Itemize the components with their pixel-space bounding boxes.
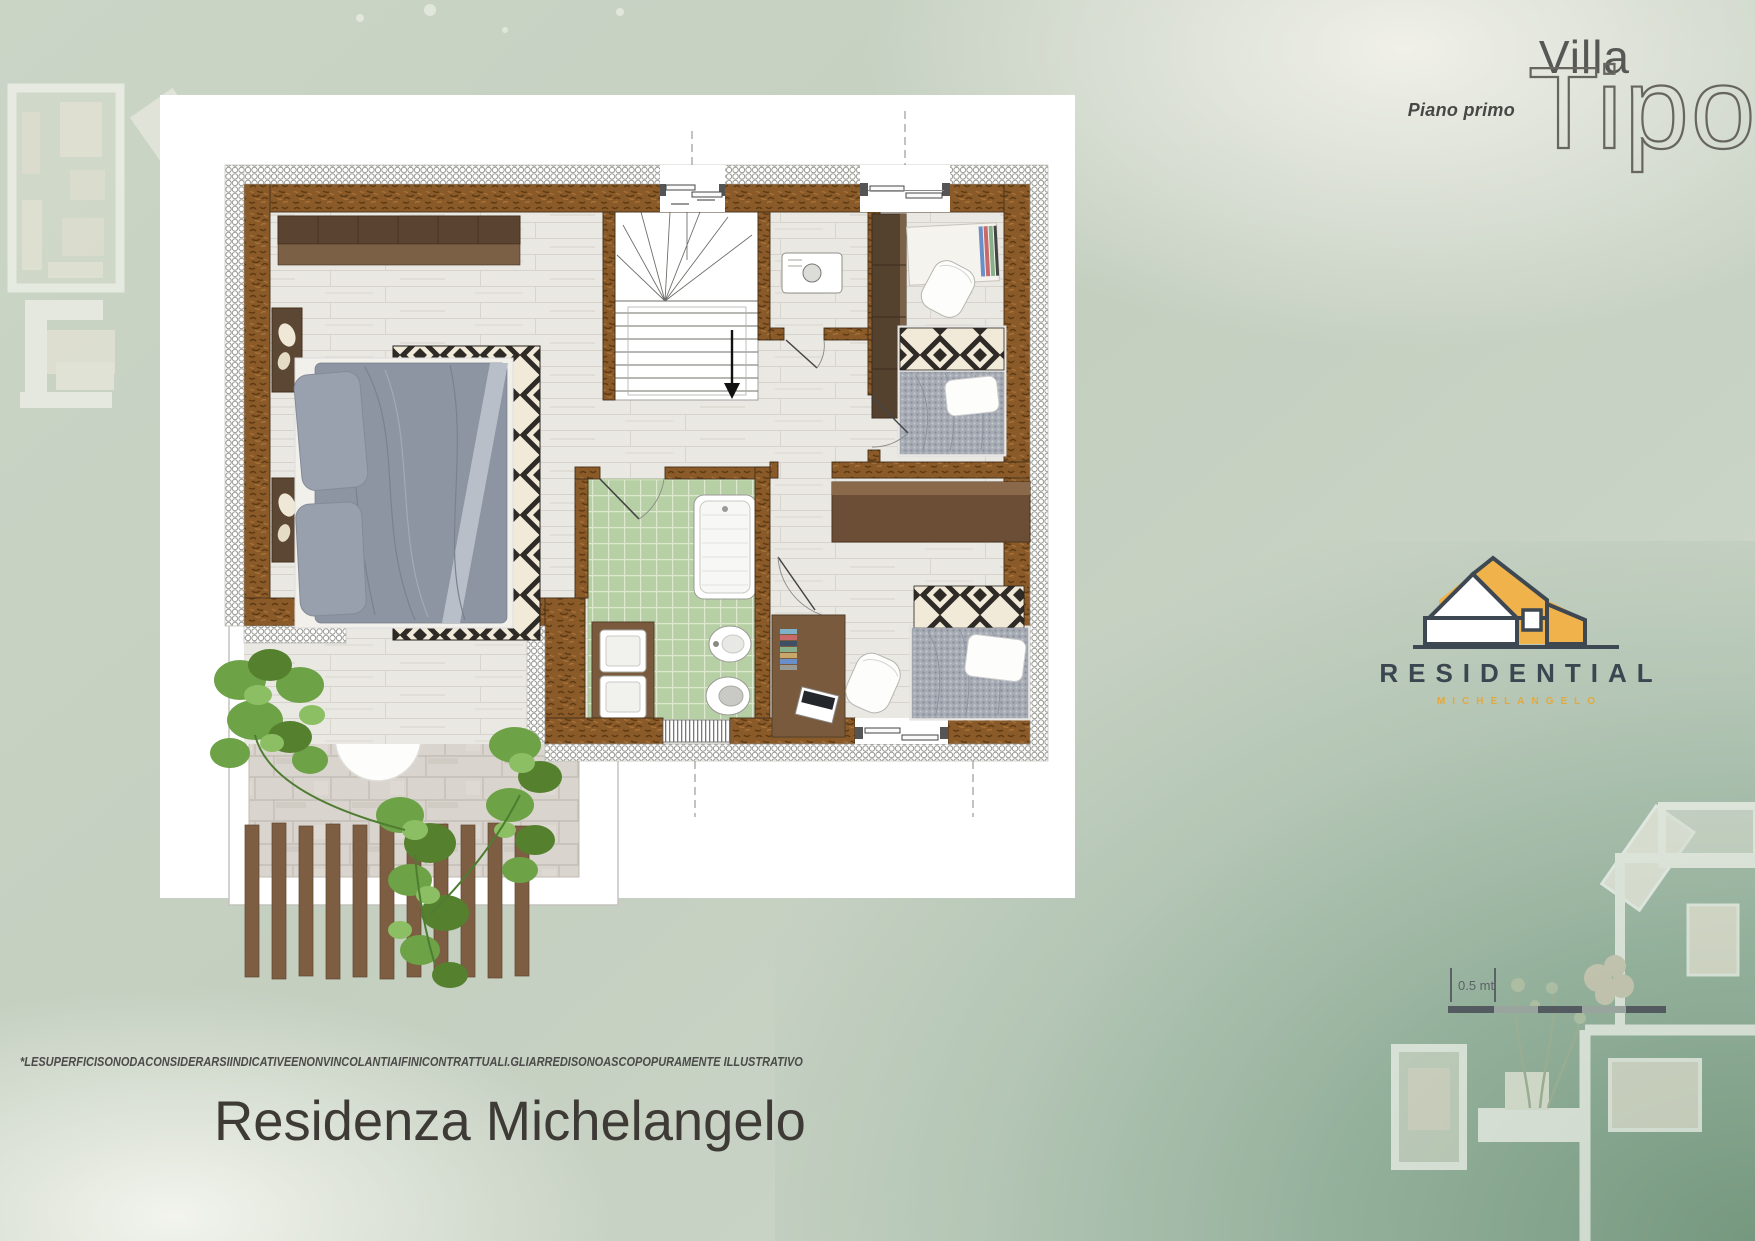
scale-label: 0.5 mt bbox=[1458, 978, 1494, 993]
scale-bar-line bbox=[1448, 1006, 1666, 1013]
floor-label: Piano primo bbox=[1330, 100, 1515, 121]
house-icon bbox=[1411, 548, 1621, 652]
floor-plan bbox=[160, 95, 1075, 990]
decor-bottom-right bbox=[1395, 806, 1755, 1241]
disclaimer-text: *LESUPERFICISONODACONSIDERARSIINDICATIVE… bbox=[20, 1055, 803, 1069]
page-title: Residenza Michelangelo bbox=[214, 1088, 806, 1153]
scale-tick bbox=[1450, 968, 1452, 1002]
bathroom-vent-window bbox=[663, 720, 730, 742]
brand-subtitle: MICHELANGELO bbox=[1346, 696, 1686, 707]
bathroom bbox=[588, 479, 756, 740]
staircase bbox=[615, 212, 758, 400]
books bbox=[780, 629, 797, 670]
wardrobe bbox=[278, 216, 520, 244]
scale-tick bbox=[1494, 968, 1496, 1002]
residential-logo: RESIDENTIAL MICHELANGELO bbox=[1346, 548, 1686, 707]
brand-name: RESIDENTIAL bbox=[1346, 658, 1686, 689]
scale-bar: 0.5 mt bbox=[1448, 968, 1670, 1016]
tipo-label: Tipo bbox=[1528, 50, 1755, 166]
